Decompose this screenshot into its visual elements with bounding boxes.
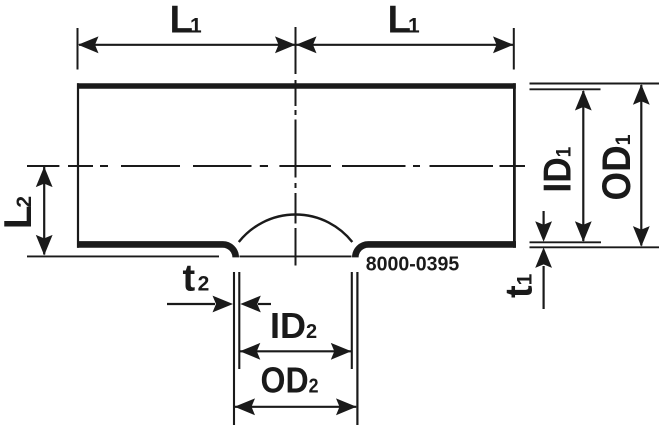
svg-text:t1: t1 (499, 273, 541, 298)
svg-text:OD2: OD2 (261, 359, 319, 400)
svg-text:8000-0395: 8000-0395 (366, 254, 460, 276)
svg-text:L1: L1 (388, 0, 421, 41)
svg-text:ID1: ID1 (537, 146, 580, 192)
svg-text:ID2: ID2 (270, 305, 317, 346)
svg-text:L2: L2 (0, 196, 40, 229)
svg-text:OD1: OD1 (595, 134, 639, 200)
svg-text:t2: t2 (183, 258, 210, 300)
svg-text:L1: L1 (170, 0, 203, 41)
